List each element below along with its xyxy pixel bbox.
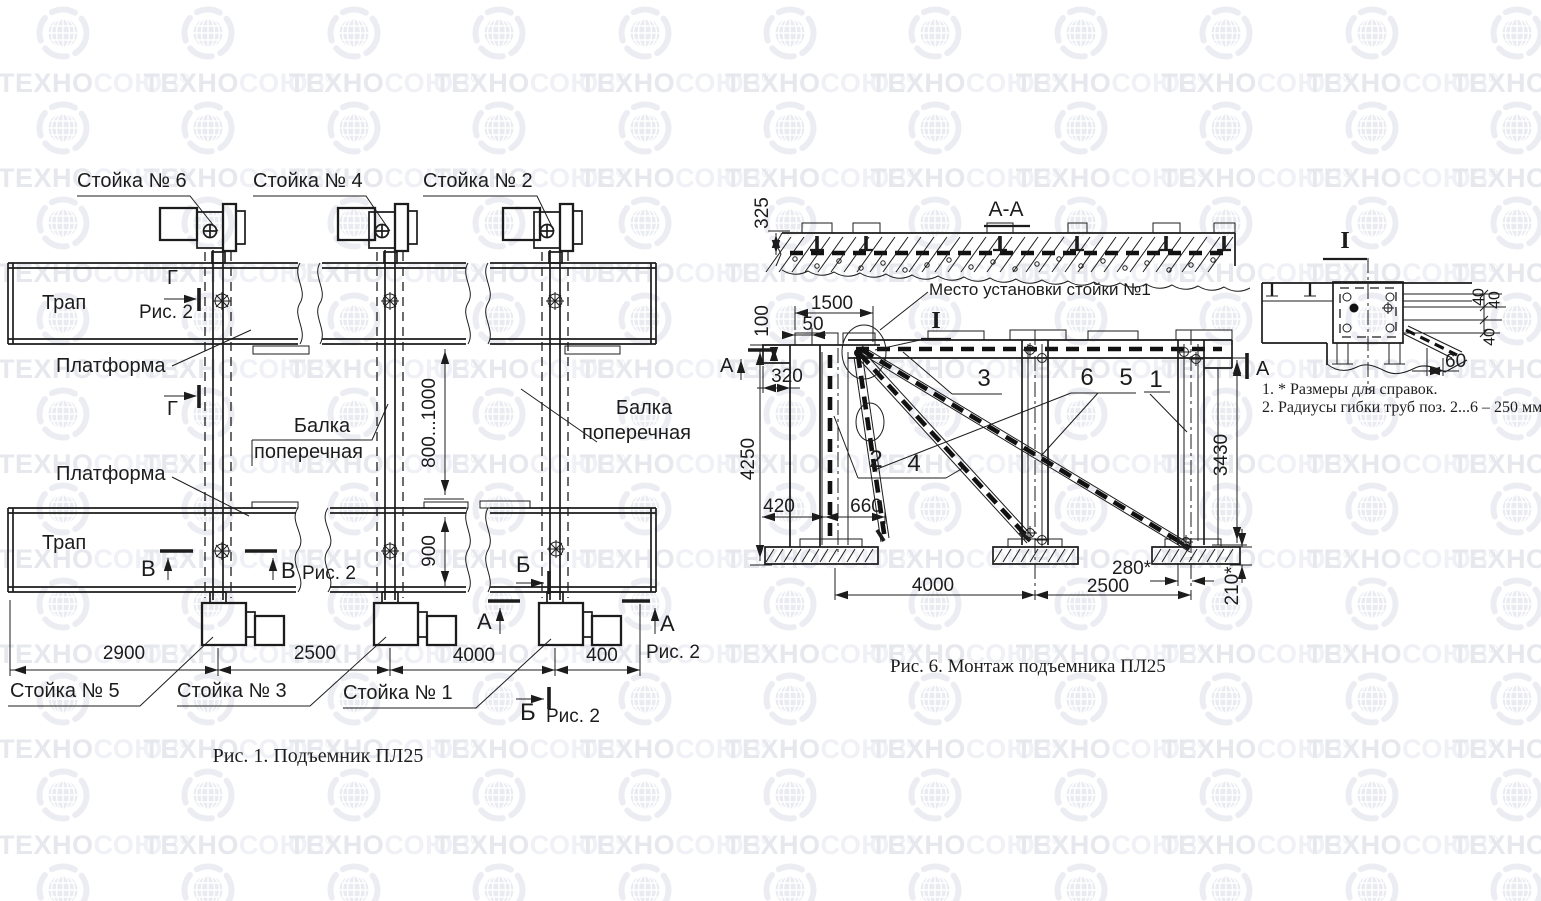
fig1-dim-2500: 2500 <box>294 644 336 664</box>
detail-dim-60: 60 <box>1445 352 1466 372</box>
fig1-fig2-ref-g: Рис. 2 <box>139 303 193 323</box>
fig1-fig2-ref-b: Рис. 2 <box>546 707 600 727</box>
detail-dim-40-b: 40 <box>1488 291 1505 309</box>
fig1-tram-bottom-label: Трап <box>42 533 86 554</box>
technical-drawing-page: ТЕХНОСОЮЗ®ТЕХНОСОЮЗ®ТЕХНОСОЮЗ®ТЕХНОСОЮЗ®… <box>0 0 1541 901</box>
fig6-pos-6: 6 <box>1080 365 1093 390</box>
fig6-node-marker: I <box>931 309 940 334</box>
fig1-stand6-label: Стойка № 6 <box>77 171 187 192</box>
fig6-dim-210: 210* <box>1223 566 1243 605</box>
fig1-stand4-label: Стойка № 4 <box>253 171 363 192</box>
fig1-view-g-top-letter: Г <box>167 268 178 289</box>
fig1-view-b-bottom-letter: Б <box>520 700 536 725</box>
fig1-dim-900: 900 <box>420 535 440 567</box>
fig6-pos-3: 3 <box>977 366 990 391</box>
fig1-platform-bottom-label: Платформа <box>56 464 165 485</box>
fig1-tram-top-label: Трап <box>42 293 86 314</box>
fig6-dim-3430: 3430 <box>1212 434 1232 476</box>
fig6-view-a-right-letter: А <box>1256 359 1269 380</box>
fig6-dim-325: 325 <box>753 197 773 229</box>
fig6-dim-4250: 4250 <box>739 438 759 480</box>
fig6-pos-4: 4 <box>907 451 920 476</box>
fig6-caption: Рис. 6. Монтаж подъемника ПЛ25 <box>890 657 1166 677</box>
fig1-beam-mid-word1: Балка <box>294 416 350 437</box>
fig6-view-a-left-letter: А <box>720 356 733 377</box>
detail-note-2: 2. Радиусы гибки труб поз. 2...6 – 250 м… <box>1262 400 1541 417</box>
fig6-dim-320: 320 <box>771 367 803 387</box>
fig1-view-a-left-letter: А <box>477 610 492 633</box>
fig1-view-v-right-letter: В <box>281 559 296 582</box>
fig6-install-note: Место установки стойки №1 <box>929 281 1151 299</box>
fig1-stand5-label: Стойка № 5 <box>10 681 120 702</box>
fig6-pos-5: 5 <box>1119 365 1132 390</box>
fig6-dim-50: 50 <box>802 315 823 335</box>
fig1-beam-right-word2: поперечная <box>582 423 691 444</box>
fig1-stand1-label: Стойка № 1 <box>343 683 453 704</box>
detail-dim-40-c: 40 <box>1483 328 1500 346</box>
fig6-pos-1: 1 <box>1149 367 1162 392</box>
fig1-stand3-label: Стойка № 3 <box>177 681 287 702</box>
fig1-dim-2900: 2900 <box>103 644 145 664</box>
fig6-dim-1500: 1500 <box>811 294 853 314</box>
fig1-fig2-ref-v: Рис. 2 <box>302 564 356 584</box>
fig6-dim-4000: 4000 <box>912 576 954 596</box>
labels-layer: Стойка № 6 Стойка № 4 Стойка № 2 Трап Г … <box>0 0 1541 901</box>
fig6-dim-2500: 2500 <box>1087 577 1129 597</box>
fig1-beam-mid-word2: поперечная <box>254 442 363 463</box>
fig1-dim-4000: 4000 <box>453 646 495 666</box>
detail-note-1: 1. * Размеры для справок. <box>1262 382 1438 399</box>
fig6-pos-2: 2 <box>869 447 882 472</box>
fig1-dim-400: 400 <box>586 646 618 666</box>
fig6-section-label: А-А <box>988 199 1023 221</box>
fig1-platform-top-label: Платформа <box>56 356 165 377</box>
fig1-view-a-right-letter: А <box>660 612 675 635</box>
fig1-view-v-left-letter: В <box>141 557 156 580</box>
fig6-dim-100: 100 <box>753 305 773 337</box>
fig1-view-b-top-letter: Б <box>516 553 530 576</box>
fig1-caption: Рис. 1. Подъемник ПЛ25 <box>213 746 424 767</box>
fig1-stand2-label: Стойка № 2 <box>423 171 533 192</box>
fig6-dim-660: 660 <box>850 497 882 517</box>
fig1-beam-right-word1: Балка <box>616 398 672 419</box>
fig1-view-g-bottom-letter: Г <box>167 399 178 420</box>
fig6-dim-420: 420 <box>763 497 795 517</box>
fig1-fig2-ref-a: Рис. 2 <box>646 643 700 663</box>
fig1-dim-height-range: 800...1000 <box>420 378 440 468</box>
detail-node-marker: I <box>1340 229 1349 254</box>
